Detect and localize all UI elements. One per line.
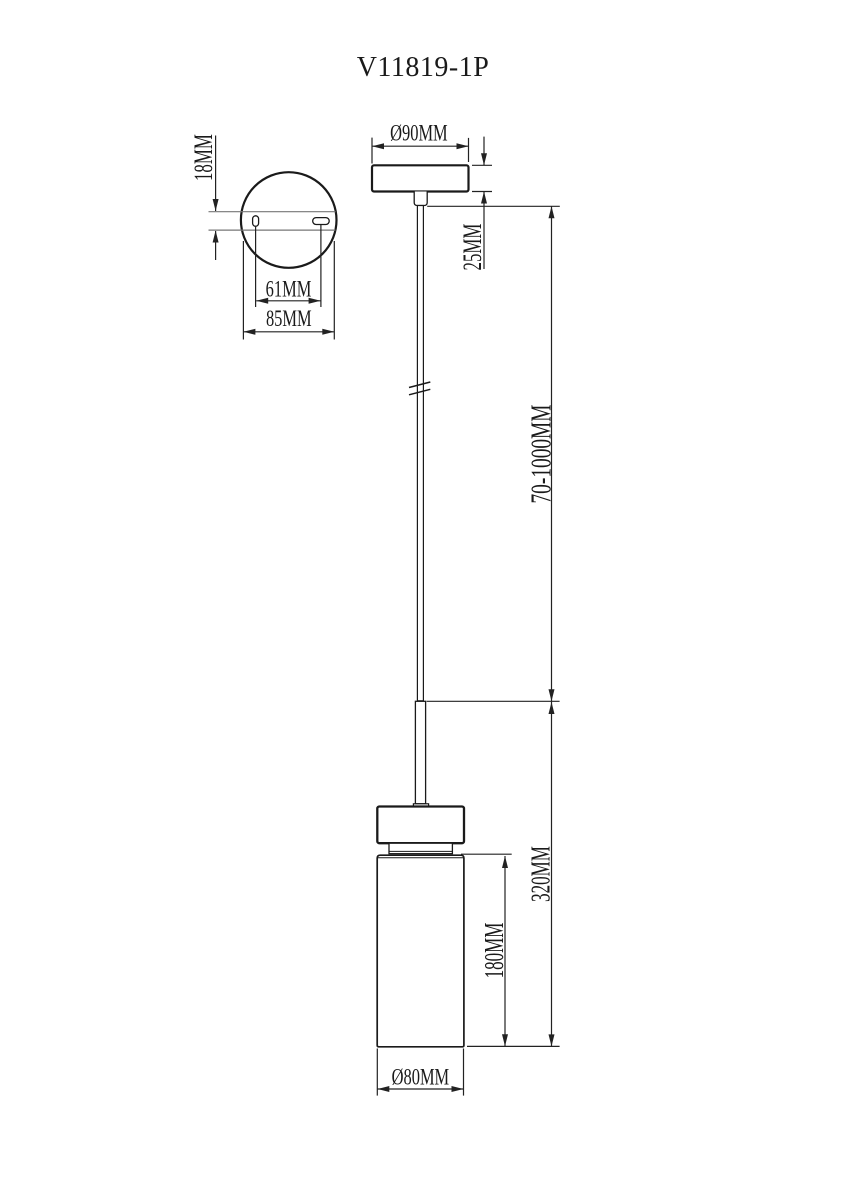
- svg-text:18MM: 18MM: [188, 134, 218, 181]
- svg-text:Ø90MM: Ø90MM: [390, 121, 448, 146]
- svg-text:25MM: 25MM: [457, 224, 487, 271]
- svg-text:Ø80MM: Ø80MM: [392, 1065, 450, 1090]
- svg-text:70-1000MM: 70-1000MM: [526, 404, 558, 503]
- svg-text:85MM: 85MM: [266, 306, 312, 331]
- svg-text:180MM: 180MM: [479, 923, 509, 979]
- svg-text:61MM: 61MM: [266, 277, 312, 302]
- svg-text:320MM: 320MM: [526, 846, 556, 902]
- svg-text:V11819-1P: V11819-1P: [357, 52, 490, 83]
